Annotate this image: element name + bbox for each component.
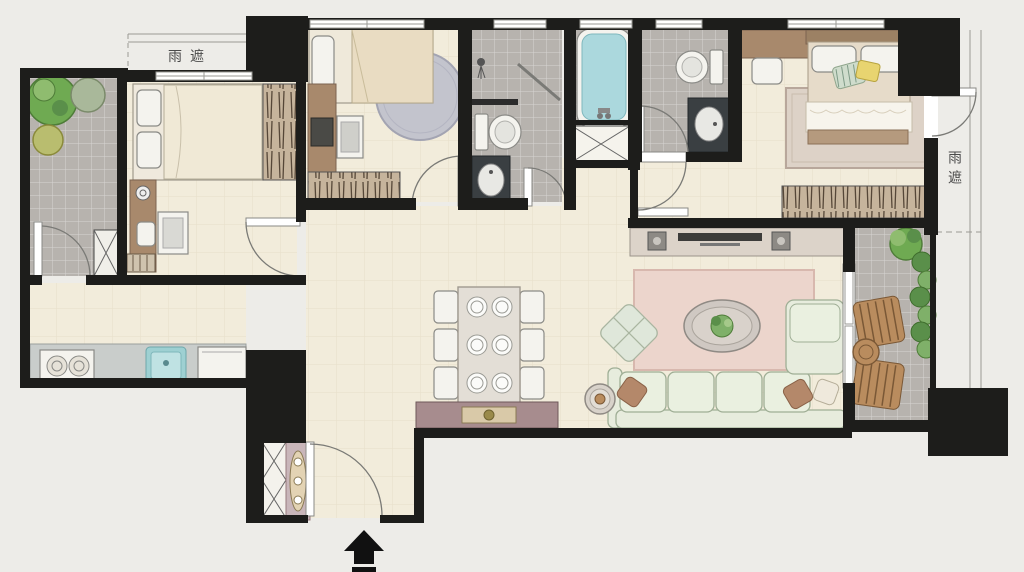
chair [752,58,782,84]
dining-chair [520,367,544,399]
window [656,20,702,28]
double-bed [806,30,912,144]
toilet [475,114,521,150]
balcony-sliding-door [843,264,855,388]
sink-vanity [688,98,730,152]
sink-vanity [472,156,510,204]
window [310,20,424,28]
tv-on-stand [158,212,188,254]
coffee-table [684,300,760,352]
rain-shelter-label-top: 雨遮 [140,46,240,66]
chair [137,222,155,246]
tub-room [572,29,631,162]
shower-partition [470,99,518,105]
dining-chair [434,291,458,323]
water-heater-icon [94,230,118,276]
window [580,20,632,28]
double-bed [133,84,263,180]
floor-plan: 雨遮 雨遮 [0,0,1024,572]
dining-area [416,287,558,428]
shoe-cabinet [262,442,286,518]
dining-chair [434,329,458,361]
floor-plan-svg [0,0,1024,572]
side-table [585,384,615,414]
desk [740,30,814,58]
sideboard [416,402,558,428]
tv-icon [678,233,762,241]
window [788,20,884,28]
tv-console [630,228,844,256]
outdoor-table [853,339,879,365]
dining-chair [520,329,544,361]
outdoor-chair [851,358,905,410]
stove [40,350,94,381]
rain-shelter-label-right: 雨遮 [944,150,964,240]
wardrobe [263,84,297,180]
wardrobe [782,186,932,218]
dining-chair [434,367,458,399]
linen-closet [572,126,630,162]
toilet [676,50,723,84]
tv-on-stand [337,116,363,158]
window [494,20,546,28]
basket [127,254,155,272]
computer-icon [311,118,333,146]
dining-chair [520,291,544,323]
entry-arrow-icon [344,530,384,572]
desk-lamp-icon [136,186,150,200]
window [156,72,252,80]
wardrobe [308,172,400,202]
bathtub [577,29,631,127]
